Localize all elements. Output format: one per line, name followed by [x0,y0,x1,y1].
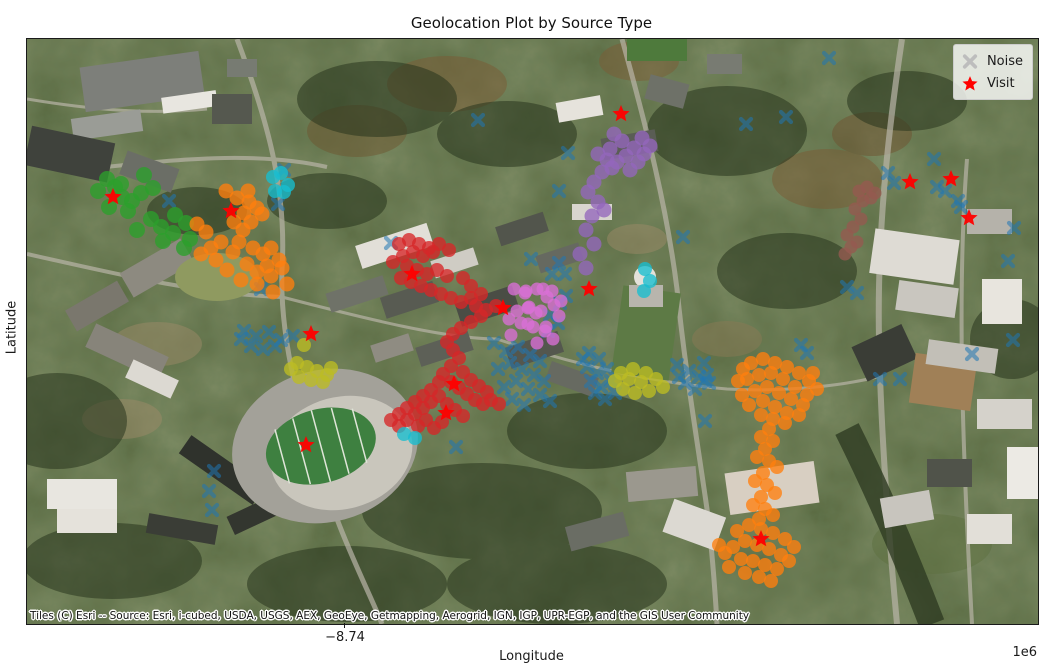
x-tick-mark [344,623,345,628]
y-axis-label: Latitude [5,278,20,378]
legend-label-visit: Visit [987,76,1015,91]
legend-label-noise: Noise [987,54,1023,69]
legend-row-visit: Visit [961,72,1023,94]
scatter-overlay [27,39,1038,624]
legend: Noise Visit [953,44,1033,100]
figure: Geolocation Plot by Source Type [0,0,1054,671]
legend-row-noise: Noise [961,50,1023,72]
map-attribution: Tiles (C) Esri -- Source: Esri, i-cubed,… [30,610,749,622]
plot-area: Noise Visit Tiles (C) Esri -- Source: Es… [26,38,1039,625]
noise-x-icon [961,53,979,70]
x-tick-label: −8.74 [315,630,375,645]
x-axis-label: Longitude [26,649,1037,664]
visit-star-icon [961,75,979,92]
chart-title: Geolocation Plot by Source Type [26,14,1037,32]
